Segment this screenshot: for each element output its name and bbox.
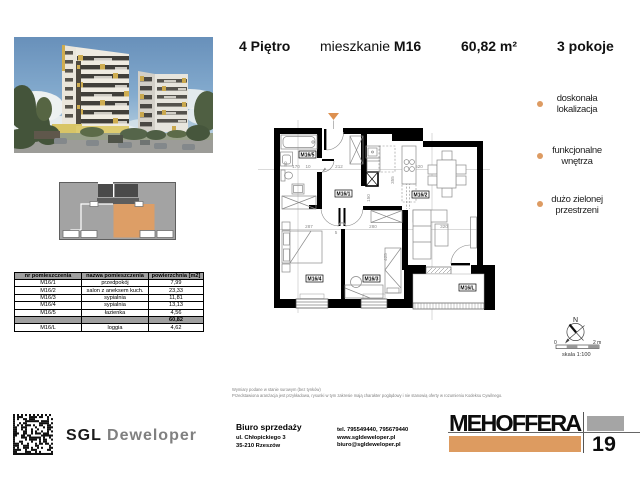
svg-text:M16/2: M16/2 xyxy=(414,192,428,198)
svg-text:M16/L: M16/L xyxy=(460,285,474,291)
svg-text:355: 355 xyxy=(390,176,395,184)
svg-text:10: 10 xyxy=(305,164,311,169)
svg-text:M16/5: M16/5 xyxy=(301,152,315,158)
svg-text:5: 5 xyxy=(335,230,338,235)
svg-text:M16/1: M16/1 xyxy=(337,191,351,197)
svg-text:170: 170 xyxy=(292,164,300,169)
svg-text:M16/4: M16/4 xyxy=(308,276,322,282)
svg-text:287: 287 xyxy=(305,224,313,229)
svg-text:212: 212 xyxy=(335,164,343,169)
svg-text:520: 520 xyxy=(415,164,423,169)
svg-text:425: 425 xyxy=(383,253,388,261)
svg-text:N: N xyxy=(573,317,578,324)
svg-text:M16/3: M16/3 xyxy=(365,276,379,282)
svg-text:skala 1:100: skala 1:100 xyxy=(562,352,591,358)
svg-text:320: 320 xyxy=(440,224,448,229)
svg-text:280: 280 xyxy=(369,224,377,229)
svg-text:150: 150 xyxy=(366,194,371,202)
